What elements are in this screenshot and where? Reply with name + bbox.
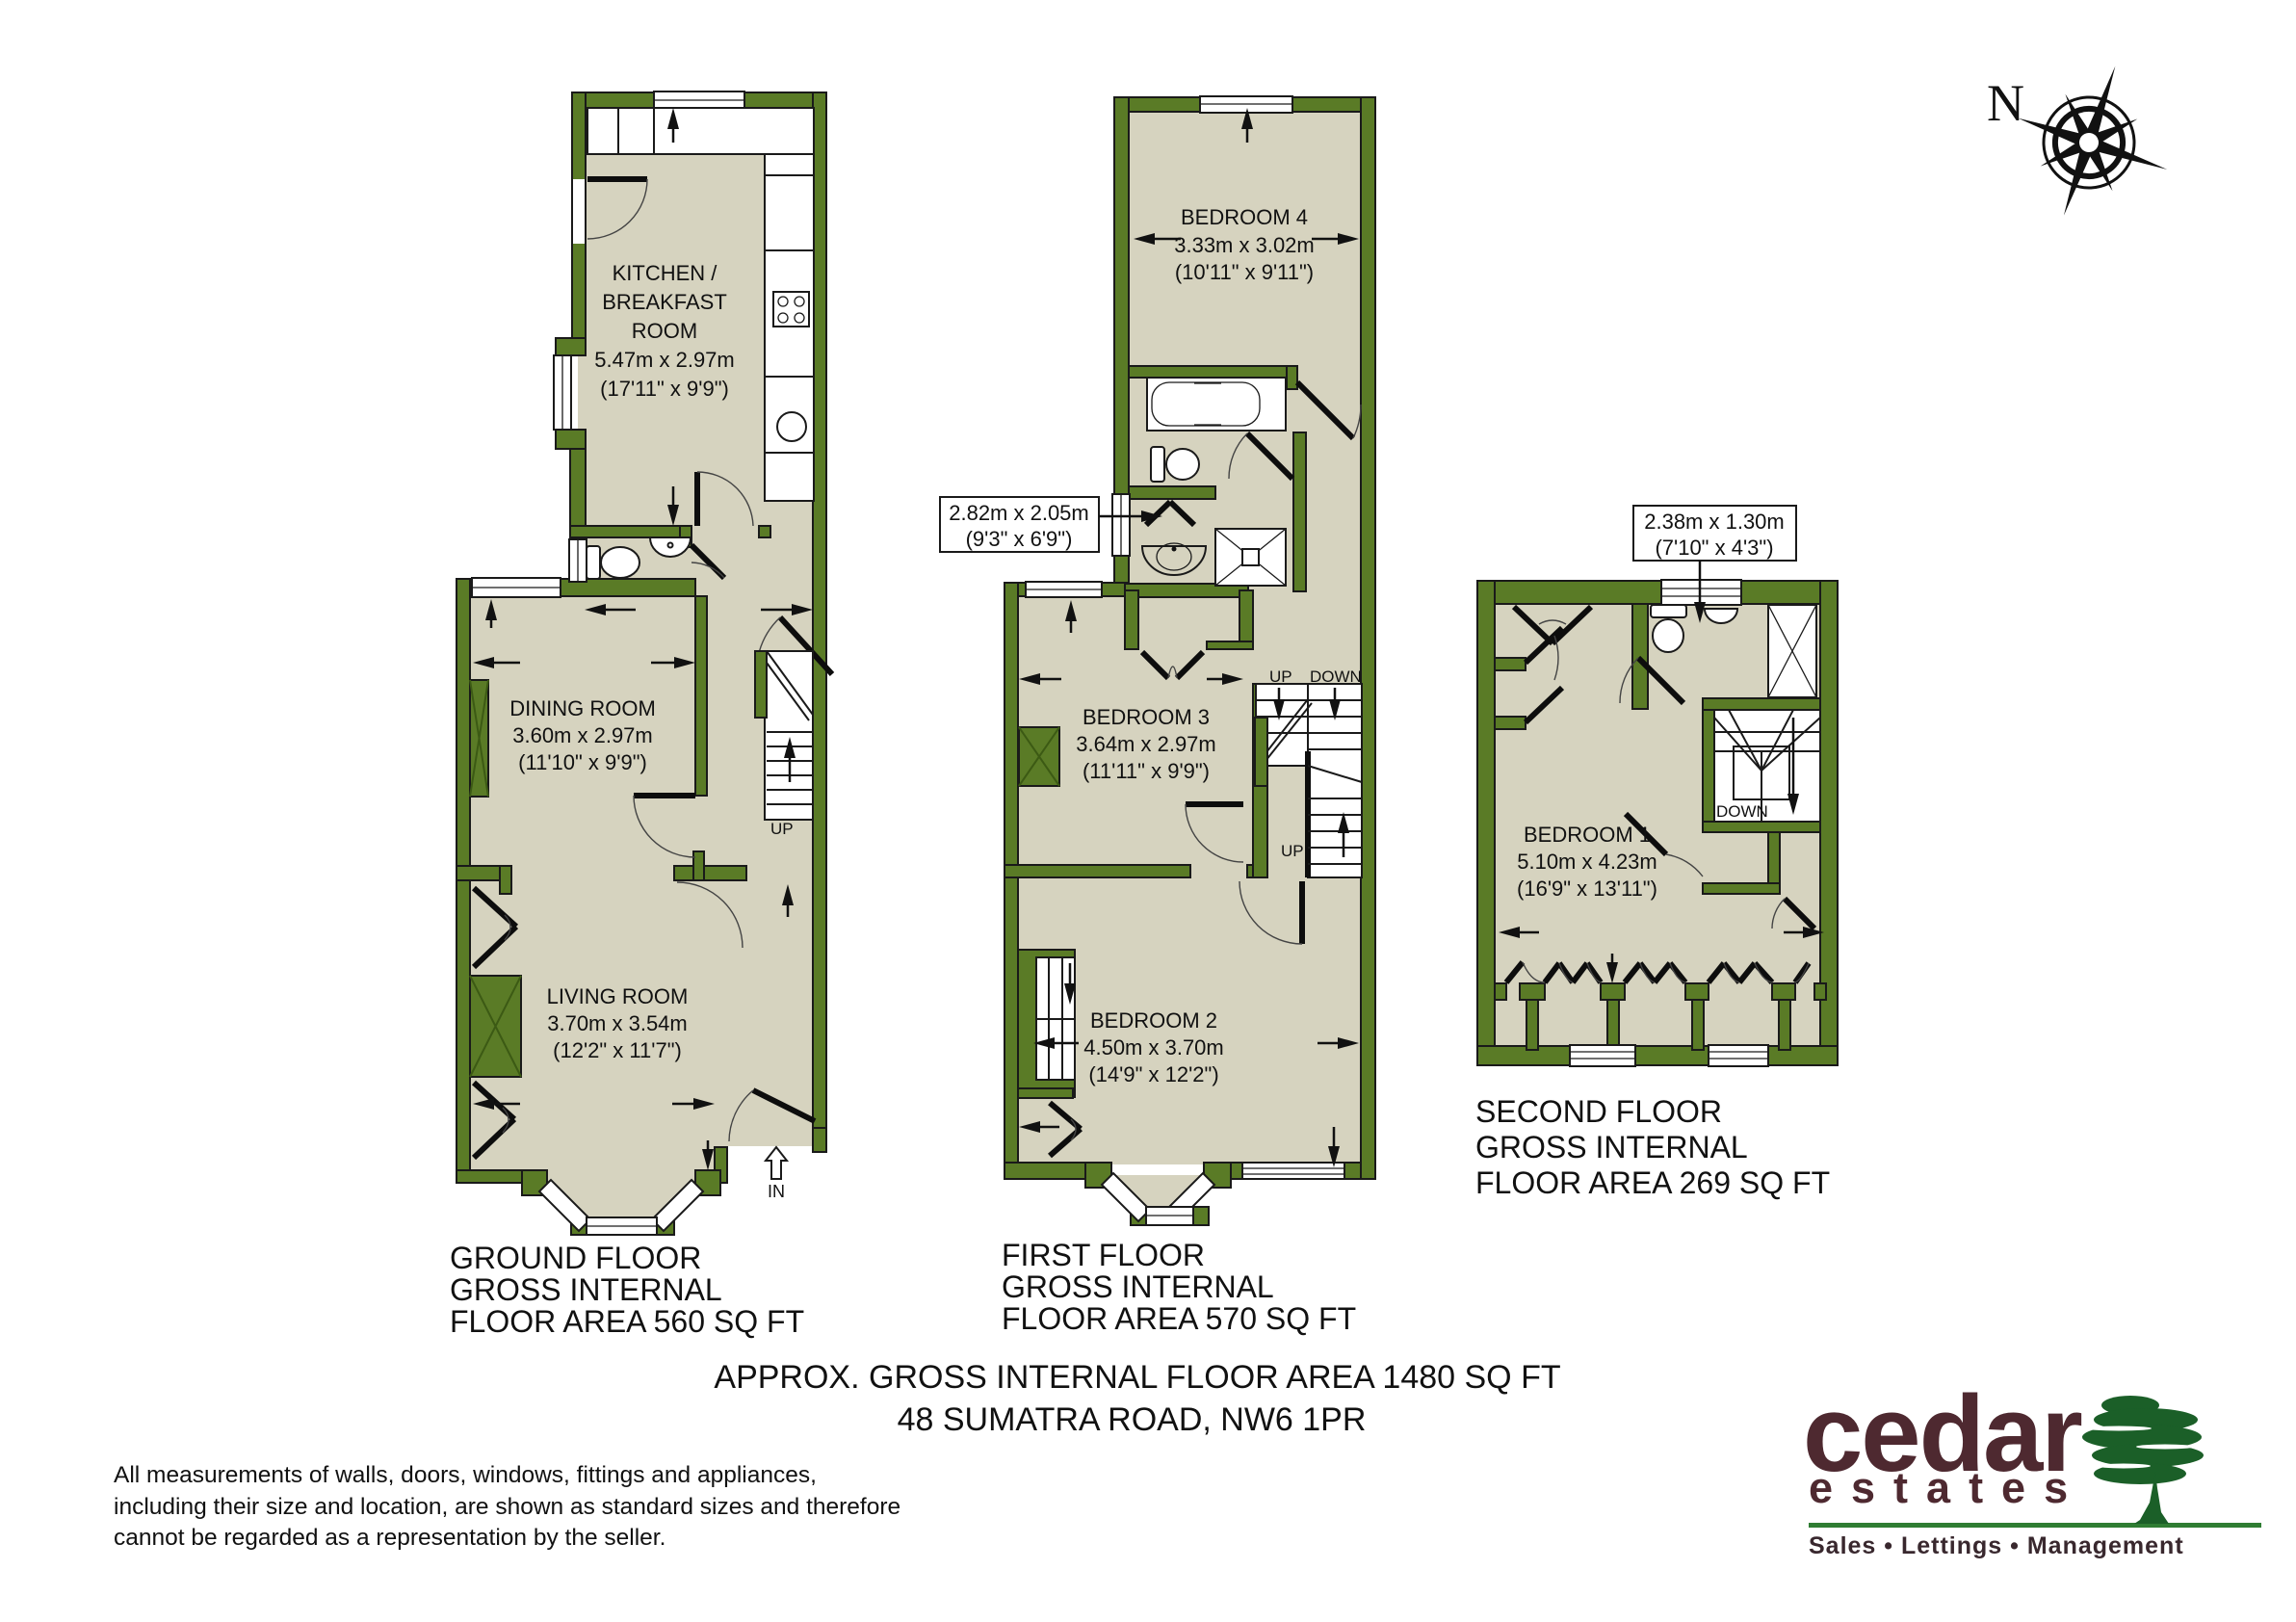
svg-text:(11'11" x 9'9"): (11'11" x 9'9")	[1083, 759, 1210, 783]
svg-text:(16'9" x 13'11"): (16'9" x 13'11")	[1517, 876, 1657, 901]
svg-text:IN: IN	[768, 1182, 785, 1201]
svg-text:DOWN: DOWN	[1716, 802, 1768, 821]
svg-text:Sales • Lettings • Management: Sales • Lettings • Management	[1809, 1532, 2184, 1559]
svg-text:(11'10" x 9'9"): (11'10" x 9'9")	[518, 750, 647, 774]
svg-text:ROOM: ROOM	[632, 319, 697, 343]
svg-text:3.33m x 3.02m: 3.33m x 3.02m	[1174, 233, 1315, 257]
svg-text:UP: UP	[770, 820, 794, 838]
svg-text:DINING ROOM: DINING ROOM	[509, 696, 656, 720]
svg-text:BEDROOM 3: BEDROOM 3	[1083, 705, 1210, 729]
svg-text:estates: estates	[1809, 1463, 2086, 1512]
svg-text:(9'3" x 6'9"): (9'3" x 6'9")	[966, 527, 1073, 551]
svg-text:UP: UP	[1269, 667, 1292, 686]
svg-text:GROSS INTERNAL: GROSS INTERNAL	[1475, 1130, 1748, 1164]
svg-text:48 SUMATRA ROAD, NW6 1PR: 48 SUMATRA ROAD, NW6 1PR	[898, 1401, 1367, 1438]
svg-text:(10'11" x 9'11"): (10'11" x 9'11")	[1175, 260, 1314, 284]
svg-text:(14'9" x 12'2"): (14'9" x 12'2")	[1088, 1062, 1218, 1086]
svg-text:FLOOR AREA 570 SQ FT: FLOOR AREA 570 SQ FT	[1002, 1301, 1356, 1336]
svg-text:SECOND FLOOR: SECOND FLOOR	[1475, 1094, 1722, 1129]
svg-text:3.64m x 2.97m: 3.64m x 2.97m	[1076, 732, 1216, 756]
svg-text:FLOOR AREA 269 SQ FT: FLOOR AREA 269 SQ FT	[1475, 1165, 1830, 1200]
svg-text:3.70m x 3.54m: 3.70m x 3.54m	[547, 1011, 688, 1035]
svg-text:LIVING ROOM: LIVING ROOM	[547, 984, 689, 1008]
svg-text:GROSS INTERNAL: GROSS INTERNAL	[450, 1272, 722, 1307]
svg-text:including their size and locat: including their size and location, are s…	[114, 1494, 900, 1520]
svg-text:GROUND FLOOR: GROUND FLOOR	[450, 1241, 701, 1275]
svg-text:DOWN: DOWN	[1310, 667, 1362, 686]
svg-text:All measurements of walls, doo: All measurements of walls, doors, window…	[114, 1462, 817, 1488]
svg-text:KITCHEN /: KITCHEN /	[613, 261, 718, 285]
svg-text:5.10m x 4.23m: 5.10m x 4.23m	[1517, 850, 1657, 874]
svg-text:(12'2" x 11'7"): (12'2" x 11'7")	[553, 1038, 682, 1062]
svg-text:FLOOR AREA 560 SQ FT: FLOOR AREA 560 SQ FT	[450, 1304, 804, 1339]
svg-text:UP: UP	[1281, 842, 1304, 860]
svg-text:BEDROOM 2: BEDROOM 2	[1090, 1008, 1217, 1033]
svg-text:GROSS INTERNAL: GROSS INTERNAL	[1002, 1269, 1274, 1304]
svg-text:4.50m x 3.70m: 4.50m x 3.70m	[1083, 1035, 1224, 1060]
svg-text:5.47m x 2.97m: 5.47m x 2.97m	[594, 348, 735, 372]
svg-text:BEDROOM 1: BEDROOM 1	[1524, 823, 1651, 847]
svg-text:(17'11" x 9'9"): (17'11" x 9'9")	[600, 377, 729, 401]
svg-text:(7'10" x 4'3"): (7'10" x 4'3")	[1655, 536, 1773, 560]
svg-text:2.38m x 1.30m: 2.38m x 1.30m	[1644, 510, 1785, 534]
svg-text:2.82m x 2.05m: 2.82m x 2.05m	[949, 501, 1089, 525]
svg-text:cannot be regarded as a repres: cannot be regarded as a representation b…	[114, 1525, 665, 1551]
svg-text:3.60m x 2.97m: 3.60m x 2.97m	[512, 723, 653, 747]
svg-text:BREAKFAST: BREAKFAST	[602, 290, 727, 314]
svg-text:FIRST FLOOR: FIRST FLOOR	[1002, 1238, 1205, 1272]
svg-text:N: N	[1987, 74, 2024, 132]
svg-text:BEDROOM 4: BEDROOM 4	[1181, 205, 1308, 229]
svg-text:APPROX. GROSS INTERNAL FLOOR A: APPROX. GROSS INTERNAL FLOOR AREA 1480 S…	[714, 1359, 1560, 1396]
